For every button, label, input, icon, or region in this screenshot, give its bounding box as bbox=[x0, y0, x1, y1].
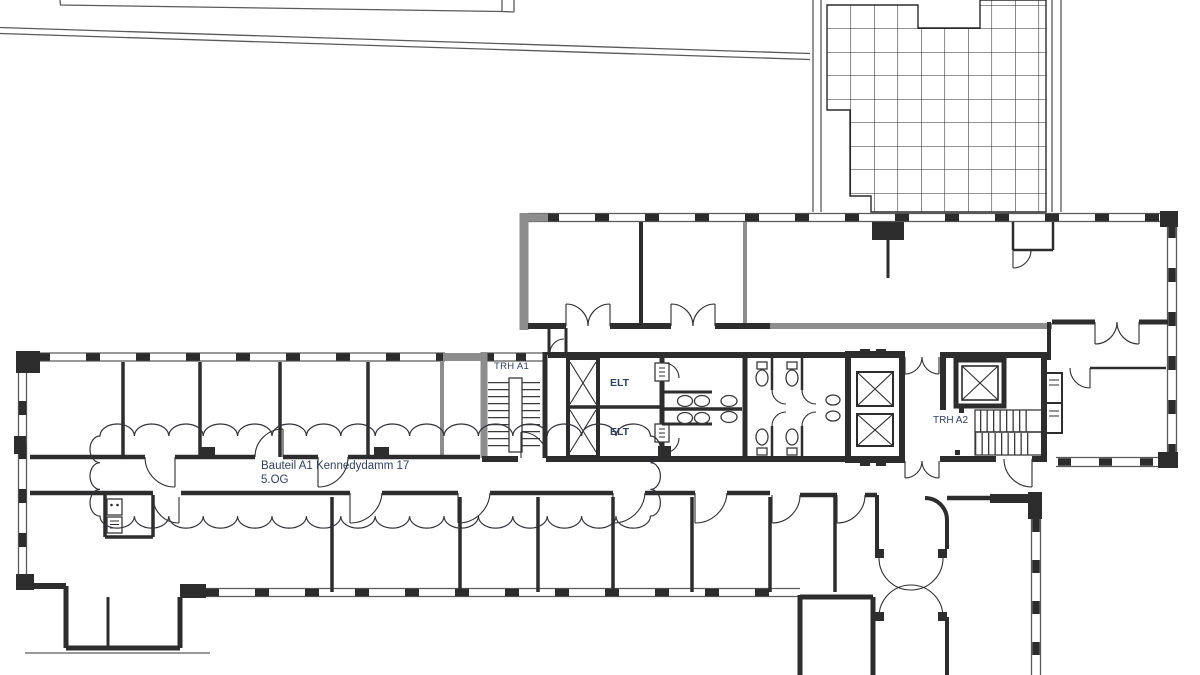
building-label-line1: Bauteil A1 Kennedydamm 17 bbox=[261, 460, 409, 474]
building-label-line2: 5.OG bbox=[261, 474, 409, 488]
elevator-shafts bbox=[848, 349, 902, 466]
stairwell-a2-label: TRH A2 bbox=[933, 415, 968, 426]
staircase-a1 bbox=[509, 328, 566, 458]
staircase-a2 bbox=[943, 352, 1062, 462]
wc-rooms bbox=[662, 357, 840, 457]
lower-wing-walls bbox=[22, 362, 877, 653]
elt-rooms bbox=[568, 357, 669, 457]
stairwell-a1-label: TRH A1 bbox=[494, 361, 529, 372]
elt-room-bottom-label: ELT bbox=[610, 426, 629, 438]
upper-wing-walls bbox=[528, 222, 1053, 326]
building-label: Bauteil A1 Kennedydamm 17 5.OG bbox=[261, 460, 409, 487]
elt-room-top-label: ELT bbox=[610, 377, 629, 389]
roof-grid bbox=[827, 0, 1046, 212]
floor-plan-page: Bauteil A1 Kennedydamm 17 5.OG TRH A1 EL… bbox=[0, 0, 1200, 675]
right-block-walls bbox=[1049, 322, 1168, 388]
floor-plan-drawing bbox=[0, 0, 1200, 675]
